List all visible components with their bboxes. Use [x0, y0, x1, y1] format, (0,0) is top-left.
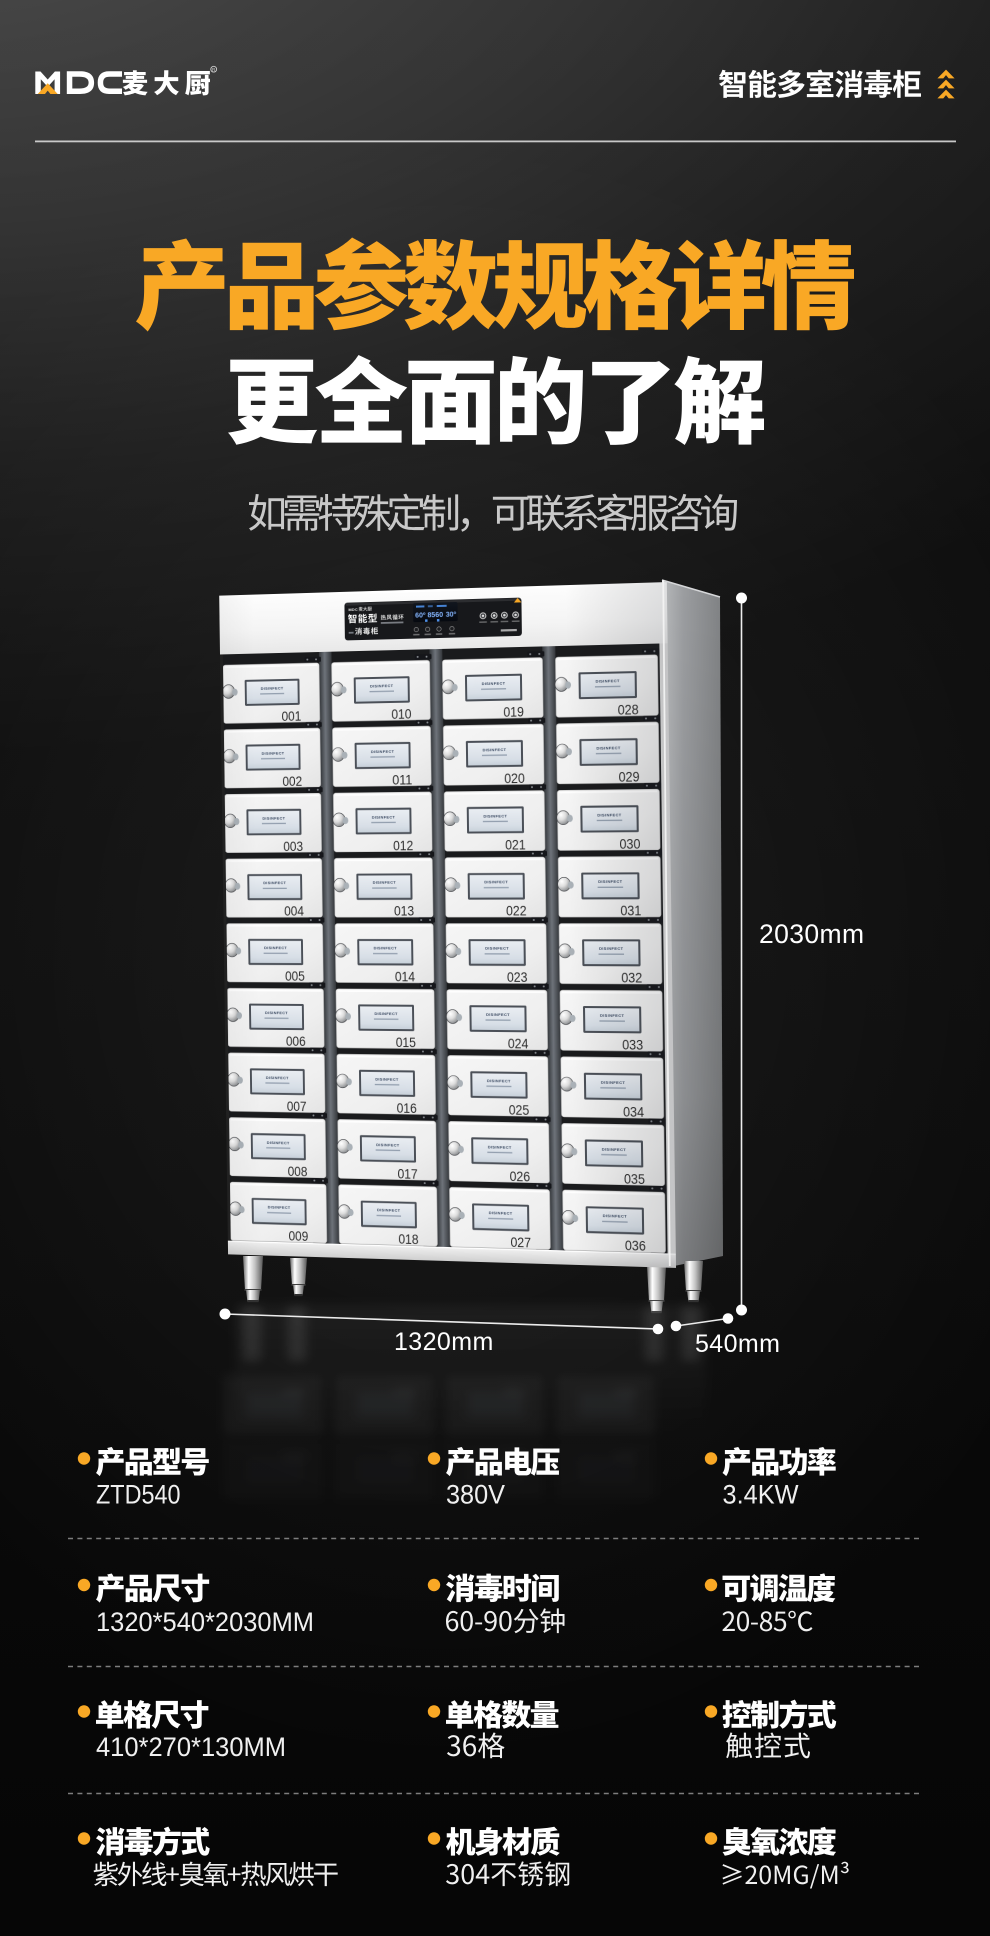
svg-text:410*270*130MM: 410*270*130MM [96, 1732, 286, 1762]
svg-text:380V: 380V [446, 1480, 505, 1510]
svg-text:ZTD540: ZTD540 [96, 1480, 181, 1510]
svg-text:1320*540*2030MM: 1320*540*2030MM [96, 1607, 314, 1637]
svg-text:1320mm: 1320mm [394, 1328, 494, 1356]
svg-text:2030mm: 2030mm [759, 919, 865, 949]
svg-text:3.4KW: 3.4KW [723, 1480, 799, 1510]
svg-text:540mm: 540mm [695, 1330, 780, 1358]
